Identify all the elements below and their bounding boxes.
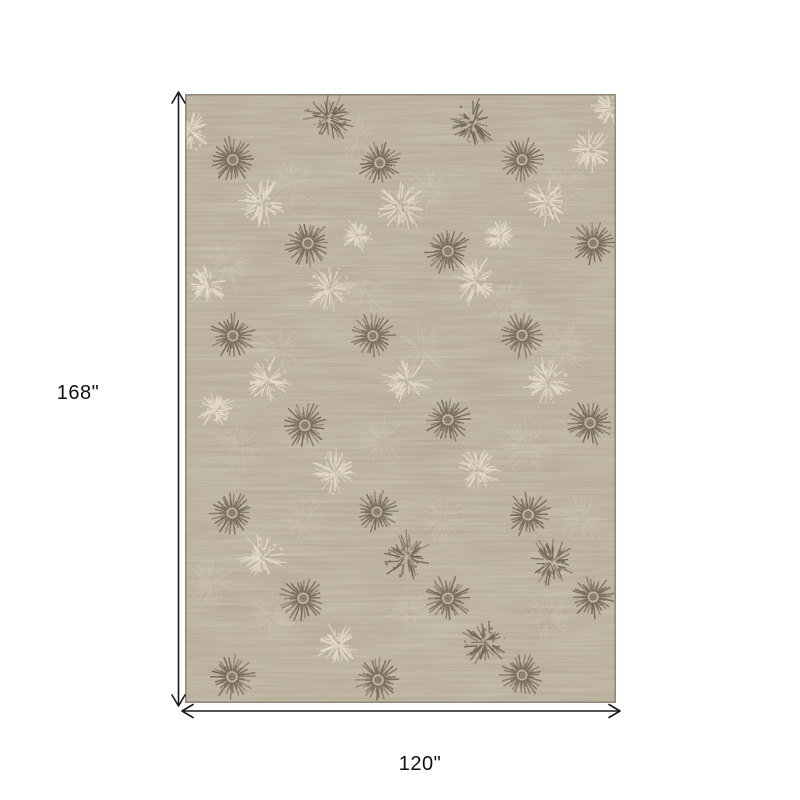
height-dimension-arrow [168,85,190,713]
width-label: 120" [370,753,470,775]
product-dimension-diagram: 168" 120" [0,0,800,800]
rug-image [185,94,616,703]
height-label: 168" [38,382,118,404]
width-dimension-arrow [175,700,627,722]
